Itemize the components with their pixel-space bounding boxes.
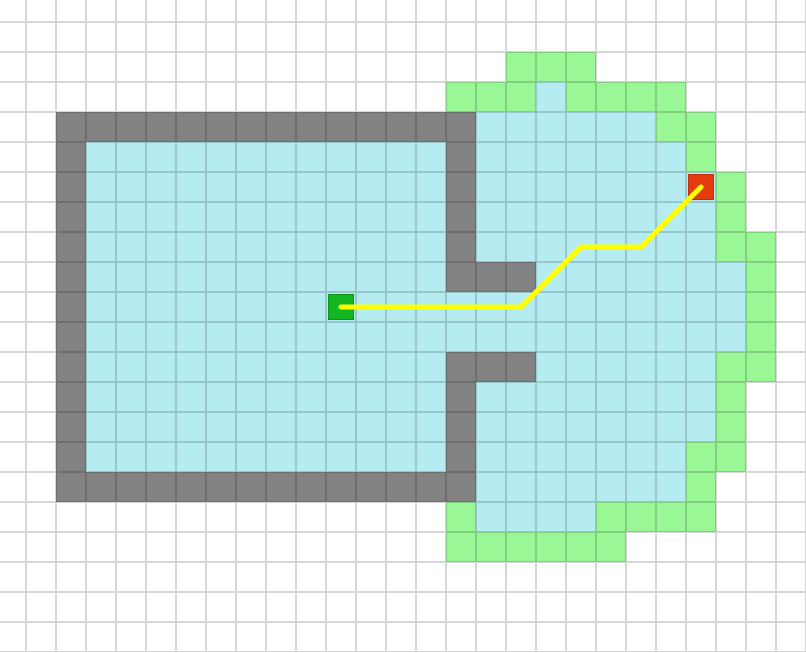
cell-wall bbox=[326, 472, 356, 502]
cell-explored bbox=[716, 322, 746, 352]
cell-unexplored bbox=[116, 592, 146, 622]
cell-explored bbox=[146, 322, 176, 352]
cell-explored bbox=[146, 172, 176, 202]
cell-explored bbox=[206, 262, 236, 292]
cell-unexplored bbox=[26, 0, 56, 22]
cell-unexplored bbox=[776, 232, 806, 262]
cell-explored bbox=[686, 202, 716, 232]
cell-explored bbox=[596, 322, 626, 352]
cell-explored bbox=[626, 382, 656, 412]
cell-unexplored bbox=[386, 592, 416, 622]
cell-unexplored bbox=[776, 592, 806, 622]
cell-explored bbox=[236, 412, 266, 442]
cell-unexplored bbox=[626, 622, 656, 652]
cell-unexplored bbox=[686, 532, 716, 562]
cell-explored bbox=[266, 322, 296, 352]
cell-unexplored bbox=[626, 22, 656, 52]
cell-explored bbox=[296, 292, 326, 322]
cell-unexplored bbox=[56, 622, 86, 652]
cell-unexplored bbox=[716, 52, 746, 82]
cell-explored bbox=[296, 262, 326, 292]
cell-unexplored bbox=[326, 622, 356, 652]
cell-unexplored bbox=[236, 562, 266, 592]
cell-unexplored bbox=[416, 532, 446, 562]
cell-explored bbox=[536, 322, 566, 352]
cell-unexplored bbox=[716, 622, 746, 652]
cell-explored bbox=[596, 142, 626, 172]
cell-wall bbox=[56, 442, 86, 472]
cell-unexplored bbox=[86, 82, 116, 112]
cell-frontier bbox=[566, 52, 596, 82]
cell-wall bbox=[176, 472, 206, 502]
cell-explored bbox=[146, 442, 176, 472]
cell-unexplored bbox=[686, 562, 716, 592]
cell-unexplored bbox=[356, 82, 386, 112]
cell-unexplored bbox=[746, 472, 776, 502]
cell-unexplored bbox=[206, 22, 236, 52]
cell-unexplored bbox=[0, 622, 26, 652]
occupancy-grid-viewport bbox=[0, 0, 806, 653]
cell-explored bbox=[146, 352, 176, 382]
cell-unexplored bbox=[146, 0, 176, 22]
cell-explored bbox=[566, 352, 596, 382]
cell-unexplored bbox=[656, 562, 686, 592]
cell-unexplored bbox=[416, 82, 446, 112]
cell-explored bbox=[146, 142, 176, 172]
cell-unexplored bbox=[506, 622, 536, 652]
cell-unexplored bbox=[326, 502, 356, 532]
cell-unexplored bbox=[776, 442, 806, 472]
cell-unexplored bbox=[0, 292, 26, 322]
cell-explored bbox=[236, 172, 266, 202]
cell-explored bbox=[566, 502, 596, 532]
cell-explored bbox=[326, 172, 356, 202]
cell-explored bbox=[266, 442, 296, 472]
cell-unexplored bbox=[326, 52, 356, 82]
cell-frontier bbox=[656, 82, 686, 112]
cell-unexplored bbox=[446, 52, 476, 82]
cell-unexplored bbox=[776, 202, 806, 232]
cell-explored bbox=[566, 472, 596, 502]
cell-unexplored bbox=[176, 592, 206, 622]
cell-unexplored bbox=[26, 112, 56, 142]
cell-unexplored bbox=[716, 142, 746, 172]
cell-explored bbox=[716, 262, 746, 292]
cell-explored bbox=[236, 442, 266, 472]
cell-explored bbox=[476, 292, 506, 322]
cell-unexplored bbox=[86, 592, 116, 622]
cell-unexplored bbox=[86, 52, 116, 82]
cell-wall bbox=[56, 412, 86, 442]
cell-wall bbox=[446, 172, 476, 202]
cell-unexplored bbox=[0, 502, 26, 532]
cell-explored bbox=[356, 382, 386, 412]
cell-wall bbox=[146, 112, 176, 142]
cell-explored bbox=[206, 202, 236, 232]
cell-unexplored bbox=[266, 622, 296, 652]
cell-unexplored bbox=[476, 0, 506, 22]
cell-explored bbox=[596, 202, 626, 232]
cell-unexplored bbox=[686, 22, 716, 52]
cell-explored bbox=[116, 352, 146, 382]
cell-unexplored bbox=[566, 562, 596, 592]
cell-unexplored bbox=[686, 622, 716, 652]
cell-explored bbox=[506, 442, 536, 472]
cell-explored bbox=[596, 172, 626, 202]
cell-explored bbox=[86, 292, 116, 322]
cell-explored bbox=[626, 442, 656, 472]
cell-explored bbox=[686, 232, 716, 262]
cell-explored bbox=[656, 262, 686, 292]
cell-explored bbox=[206, 412, 236, 442]
cell-explored bbox=[296, 412, 326, 442]
cell-unexplored bbox=[416, 622, 446, 652]
cell-unexplored bbox=[416, 562, 446, 592]
cell-unexplored bbox=[296, 622, 326, 652]
cell-unexplored bbox=[746, 502, 776, 532]
cell-unexplored bbox=[446, 0, 476, 22]
cell-unexplored bbox=[236, 52, 266, 82]
cell-explored bbox=[536, 502, 566, 532]
cell-explored bbox=[116, 412, 146, 442]
cell-explored bbox=[686, 382, 716, 412]
cell-explored bbox=[506, 412, 536, 442]
cell-explored bbox=[626, 232, 656, 262]
cell-explored bbox=[266, 262, 296, 292]
cell-unexplored bbox=[746, 442, 776, 472]
cell-unexplored bbox=[686, 0, 716, 22]
cell-unexplored bbox=[0, 172, 26, 202]
cell-frontier bbox=[596, 502, 626, 532]
cell-unexplored bbox=[206, 592, 236, 622]
cell-unexplored bbox=[416, 22, 446, 52]
cell-explored bbox=[386, 232, 416, 262]
cell-explored bbox=[476, 472, 506, 502]
cell-wall bbox=[56, 262, 86, 292]
cell-unexplored bbox=[266, 82, 296, 112]
cell-explored bbox=[176, 352, 206, 382]
cell-unexplored bbox=[206, 532, 236, 562]
cell-explored bbox=[596, 292, 626, 322]
cell-unexplored bbox=[566, 592, 596, 622]
cell-wall bbox=[446, 382, 476, 412]
cell-unexplored bbox=[236, 592, 266, 622]
cell-unexplored bbox=[476, 22, 506, 52]
cell-unexplored bbox=[206, 52, 236, 82]
cell-unexplored bbox=[266, 502, 296, 532]
cell-wall bbox=[56, 292, 86, 322]
cell-explored bbox=[476, 412, 506, 442]
cell-unexplored bbox=[596, 0, 626, 22]
cell-explored bbox=[176, 292, 206, 322]
cell-explored bbox=[536, 142, 566, 172]
cell-explored bbox=[506, 112, 536, 142]
cell-wall bbox=[476, 262, 506, 292]
cell-explored bbox=[116, 172, 146, 202]
cell-unexplored bbox=[26, 292, 56, 322]
cell-unexplored bbox=[596, 562, 626, 592]
cell-explored bbox=[326, 442, 356, 472]
cell-explored bbox=[656, 352, 686, 382]
cell-unexplored bbox=[86, 0, 116, 22]
cell-frontier bbox=[566, 82, 596, 112]
cell-unexplored bbox=[746, 382, 776, 412]
cell-unexplored bbox=[776, 82, 806, 112]
cell-unexplored bbox=[86, 622, 116, 652]
cell-unexplored bbox=[26, 352, 56, 382]
cell-frontier bbox=[686, 142, 716, 172]
cell-frontier bbox=[656, 112, 686, 142]
cell-unexplored bbox=[776, 352, 806, 382]
cell-unexplored bbox=[776, 22, 806, 52]
cell-explored bbox=[506, 502, 536, 532]
cell-unexplored bbox=[176, 82, 206, 112]
cell-wall bbox=[236, 472, 266, 502]
cell-explored bbox=[176, 142, 206, 172]
cell-explored bbox=[296, 142, 326, 172]
cell-unexplored bbox=[116, 82, 146, 112]
cell-frontier bbox=[536, 532, 566, 562]
cell-unexplored bbox=[356, 52, 386, 82]
cell-unexplored bbox=[26, 232, 56, 262]
cell-unexplored bbox=[656, 52, 686, 82]
cell-explored bbox=[386, 292, 416, 322]
cell-explored bbox=[116, 322, 146, 352]
cell-explored bbox=[656, 382, 686, 412]
cell-explored bbox=[176, 322, 206, 352]
cell-wall bbox=[56, 322, 86, 352]
cell-frontier bbox=[476, 532, 506, 562]
cell-explored bbox=[86, 442, 116, 472]
cell-unexplored bbox=[776, 622, 806, 652]
cell-explored bbox=[416, 322, 446, 352]
cell-wall bbox=[266, 112, 296, 142]
cell-unexplored bbox=[26, 442, 56, 472]
cell-unexplored bbox=[596, 622, 626, 652]
cell-unexplored bbox=[446, 22, 476, 52]
cell-explored bbox=[626, 112, 656, 142]
cell-explored bbox=[356, 202, 386, 232]
cell-explored bbox=[116, 202, 146, 232]
cell-wall bbox=[176, 112, 206, 142]
cell-explored bbox=[356, 232, 386, 262]
cell-wall bbox=[446, 142, 476, 172]
cell-unexplored bbox=[656, 0, 686, 22]
cell-frontier bbox=[626, 502, 656, 532]
cell-explored bbox=[476, 502, 506, 532]
cell-unexplored bbox=[236, 622, 266, 652]
cell-unexplored bbox=[746, 22, 776, 52]
cell-unexplored bbox=[266, 0, 296, 22]
cell-unexplored bbox=[236, 502, 266, 532]
cell-unexplored bbox=[386, 532, 416, 562]
cell-unexplored bbox=[716, 532, 746, 562]
cell-frontier bbox=[746, 232, 776, 262]
cell-unexplored bbox=[206, 562, 236, 592]
cell-explored bbox=[86, 262, 116, 292]
cell-frontier bbox=[746, 262, 776, 292]
cell-wall bbox=[146, 472, 176, 502]
cell-wall bbox=[416, 472, 446, 502]
cell-explored bbox=[326, 142, 356, 172]
cell-unexplored bbox=[26, 382, 56, 412]
cell-unexplored bbox=[206, 0, 236, 22]
cell-explored bbox=[506, 292, 536, 322]
cell-explored bbox=[476, 322, 506, 352]
cell-wall bbox=[266, 472, 296, 502]
cell-unexplored bbox=[0, 232, 26, 262]
cell-unexplored bbox=[0, 442, 26, 472]
cell-explored bbox=[116, 442, 146, 472]
cell-explored bbox=[686, 412, 716, 442]
cell-explored bbox=[386, 262, 416, 292]
cell-wall bbox=[506, 262, 536, 292]
cell-unexplored bbox=[266, 532, 296, 562]
cell-explored bbox=[596, 442, 626, 472]
cell-explored bbox=[236, 352, 266, 382]
cell-unexplored bbox=[746, 622, 776, 652]
cell-frontier bbox=[686, 112, 716, 142]
cell-unexplored bbox=[176, 562, 206, 592]
cell-explored bbox=[386, 442, 416, 472]
cell-explored bbox=[716, 292, 746, 322]
cell-explored bbox=[266, 232, 296, 262]
cell-explored bbox=[566, 322, 596, 352]
cell-explored bbox=[536, 442, 566, 472]
cell-unexplored bbox=[566, 622, 596, 652]
cell-wall bbox=[356, 472, 386, 502]
cell-unexplored bbox=[776, 142, 806, 172]
cell-unexplored bbox=[386, 52, 416, 82]
cell-explored bbox=[356, 352, 386, 382]
cell-explored bbox=[326, 232, 356, 262]
cell-wall bbox=[56, 352, 86, 382]
cell-unexplored bbox=[536, 592, 566, 622]
cell-unexplored bbox=[476, 562, 506, 592]
cell-unexplored bbox=[296, 592, 326, 622]
cell-unexplored bbox=[746, 0, 776, 22]
cell-unexplored bbox=[26, 52, 56, 82]
cell-frontier bbox=[626, 82, 656, 112]
cell-unexplored bbox=[206, 82, 236, 112]
cell-wall bbox=[56, 112, 86, 142]
cell-unexplored bbox=[206, 502, 236, 532]
cell-explored bbox=[626, 262, 656, 292]
cell-unexplored bbox=[596, 52, 626, 82]
cell-unexplored bbox=[86, 22, 116, 52]
cell-explored bbox=[656, 292, 686, 322]
cell-wall bbox=[86, 112, 116, 142]
cell-explored bbox=[236, 382, 266, 412]
cell-unexplored bbox=[716, 22, 746, 52]
cell-unexplored bbox=[26, 262, 56, 292]
cell-explored bbox=[536, 232, 566, 262]
cell-unexplored bbox=[386, 622, 416, 652]
cell-explored bbox=[506, 472, 536, 502]
cell-explored bbox=[86, 232, 116, 262]
cell-unexplored bbox=[716, 112, 746, 142]
cell-explored bbox=[596, 472, 626, 502]
cell-unexplored bbox=[26, 202, 56, 232]
cell-frontier bbox=[656, 502, 686, 532]
cell-explored bbox=[416, 412, 446, 442]
cell-wall bbox=[56, 172, 86, 202]
cell-explored bbox=[176, 262, 206, 292]
cell-explored bbox=[176, 232, 206, 262]
cell-wall bbox=[386, 472, 416, 502]
cell-explored bbox=[686, 322, 716, 352]
cell-unexplored bbox=[56, 22, 86, 52]
cell-explored bbox=[626, 412, 656, 442]
cell-wall bbox=[56, 202, 86, 232]
cell-unexplored bbox=[326, 82, 356, 112]
cell-unexplored bbox=[116, 622, 146, 652]
cell-explored bbox=[656, 172, 686, 202]
cell-frontier bbox=[716, 442, 746, 472]
cell-explored bbox=[416, 202, 446, 232]
cell-unexplored bbox=[476, 622, 506, 652]
cell-unexplored bbox=[0, 262, 26, 292]
cell-unexplored bbox=[716, 82, 746, 112]
cell-unexplored bbox=[746, 52, 776, 82]
cell-frontier bbox=[596, 82, 626, 112]
cell-unexplored bbox=[326, 0, 356, 22]
cell-explored bbox=[656, 142, 686, 172]
cell-explored bbox=[206, 232, 236, 262]
cell-unexplored bbox=[266, 22, 296, 52]
cell-unexplored bbox=[0, 592, 26, 622]
cell-unexplored bbox=[116, 22, 146, 52]
cell-unexplored bbox=[716, 592, 746, 622]
cell-wall bbox=[416, 112, 446, 142]
cell-unexplored bbox=[26, 502, 56, 532]
cell-unexplored bbox=[296, 562, 326, 592]
cell-explored bbox=[476, 172, 506, 202]
cell-explored bbox=[176, 442, 206, 472]
cell-unexplored bbox=[26, 412, 56, 442]
cell-explored bbox=[206, 292, 236, 322]
cell-unexplored bbox=[566, 22, 596, 52]
cell-unexplored bbox=[56, 502, 86, 532]
cell-frontier bbox=[746, 322, 776, 352]
cell-unexplored bbox=[686, 52, 716, 82]
cell-unexplored bbox=[776, 112, 806, 142]
cell-explored bbox=[476, 202, 506, 232]
cell-explored bbox=[206, 352, 236, 382]
cell-explored bbox=[356, 172, 386, 202]
cell-unexplored bbox=[56, 562, 86, 592]
cell-unexplored bbox=[776, 472, 806, 502]
cell-unexplored bbox=[116, 0, 146, 22]
cell-unexplored bbox=[776, 412, 806, 442]
cell-explored bbox=[686, 292, 716, 322]
cell-explored bbox=[386, 322, 416, 352]
cell-unexplored bbox=[146, 622, 176, 652]
cell-unexplored bbox=[296, 52, 326, 82]
cell-unexplored bbox=[716, 0, 746, 22]
cell-unexplored bbox=[0, 472, 26, 502]
cell-explored bbox=[326, 352, 356, 382]
cell-unexplored bbox=[536, 562, 566, 592]
cell-wall bbox=[116, 112, 146, 142]
cell-frontier bbox=[446, 502, 476, 532]
cell-unexplored bbox=[86, 562, 116, 592]
cell-unexplored bbox=[356, 592, 386, 622]
cell-unexplored bbox=[686, 592, 716, 622]
cell-explored bbox=[176, 382, 206, 412]
cell-unexplored bbox=[746, 172, 776, 202]
cell-unexplored bbox=[26, 592, 56, 622]
